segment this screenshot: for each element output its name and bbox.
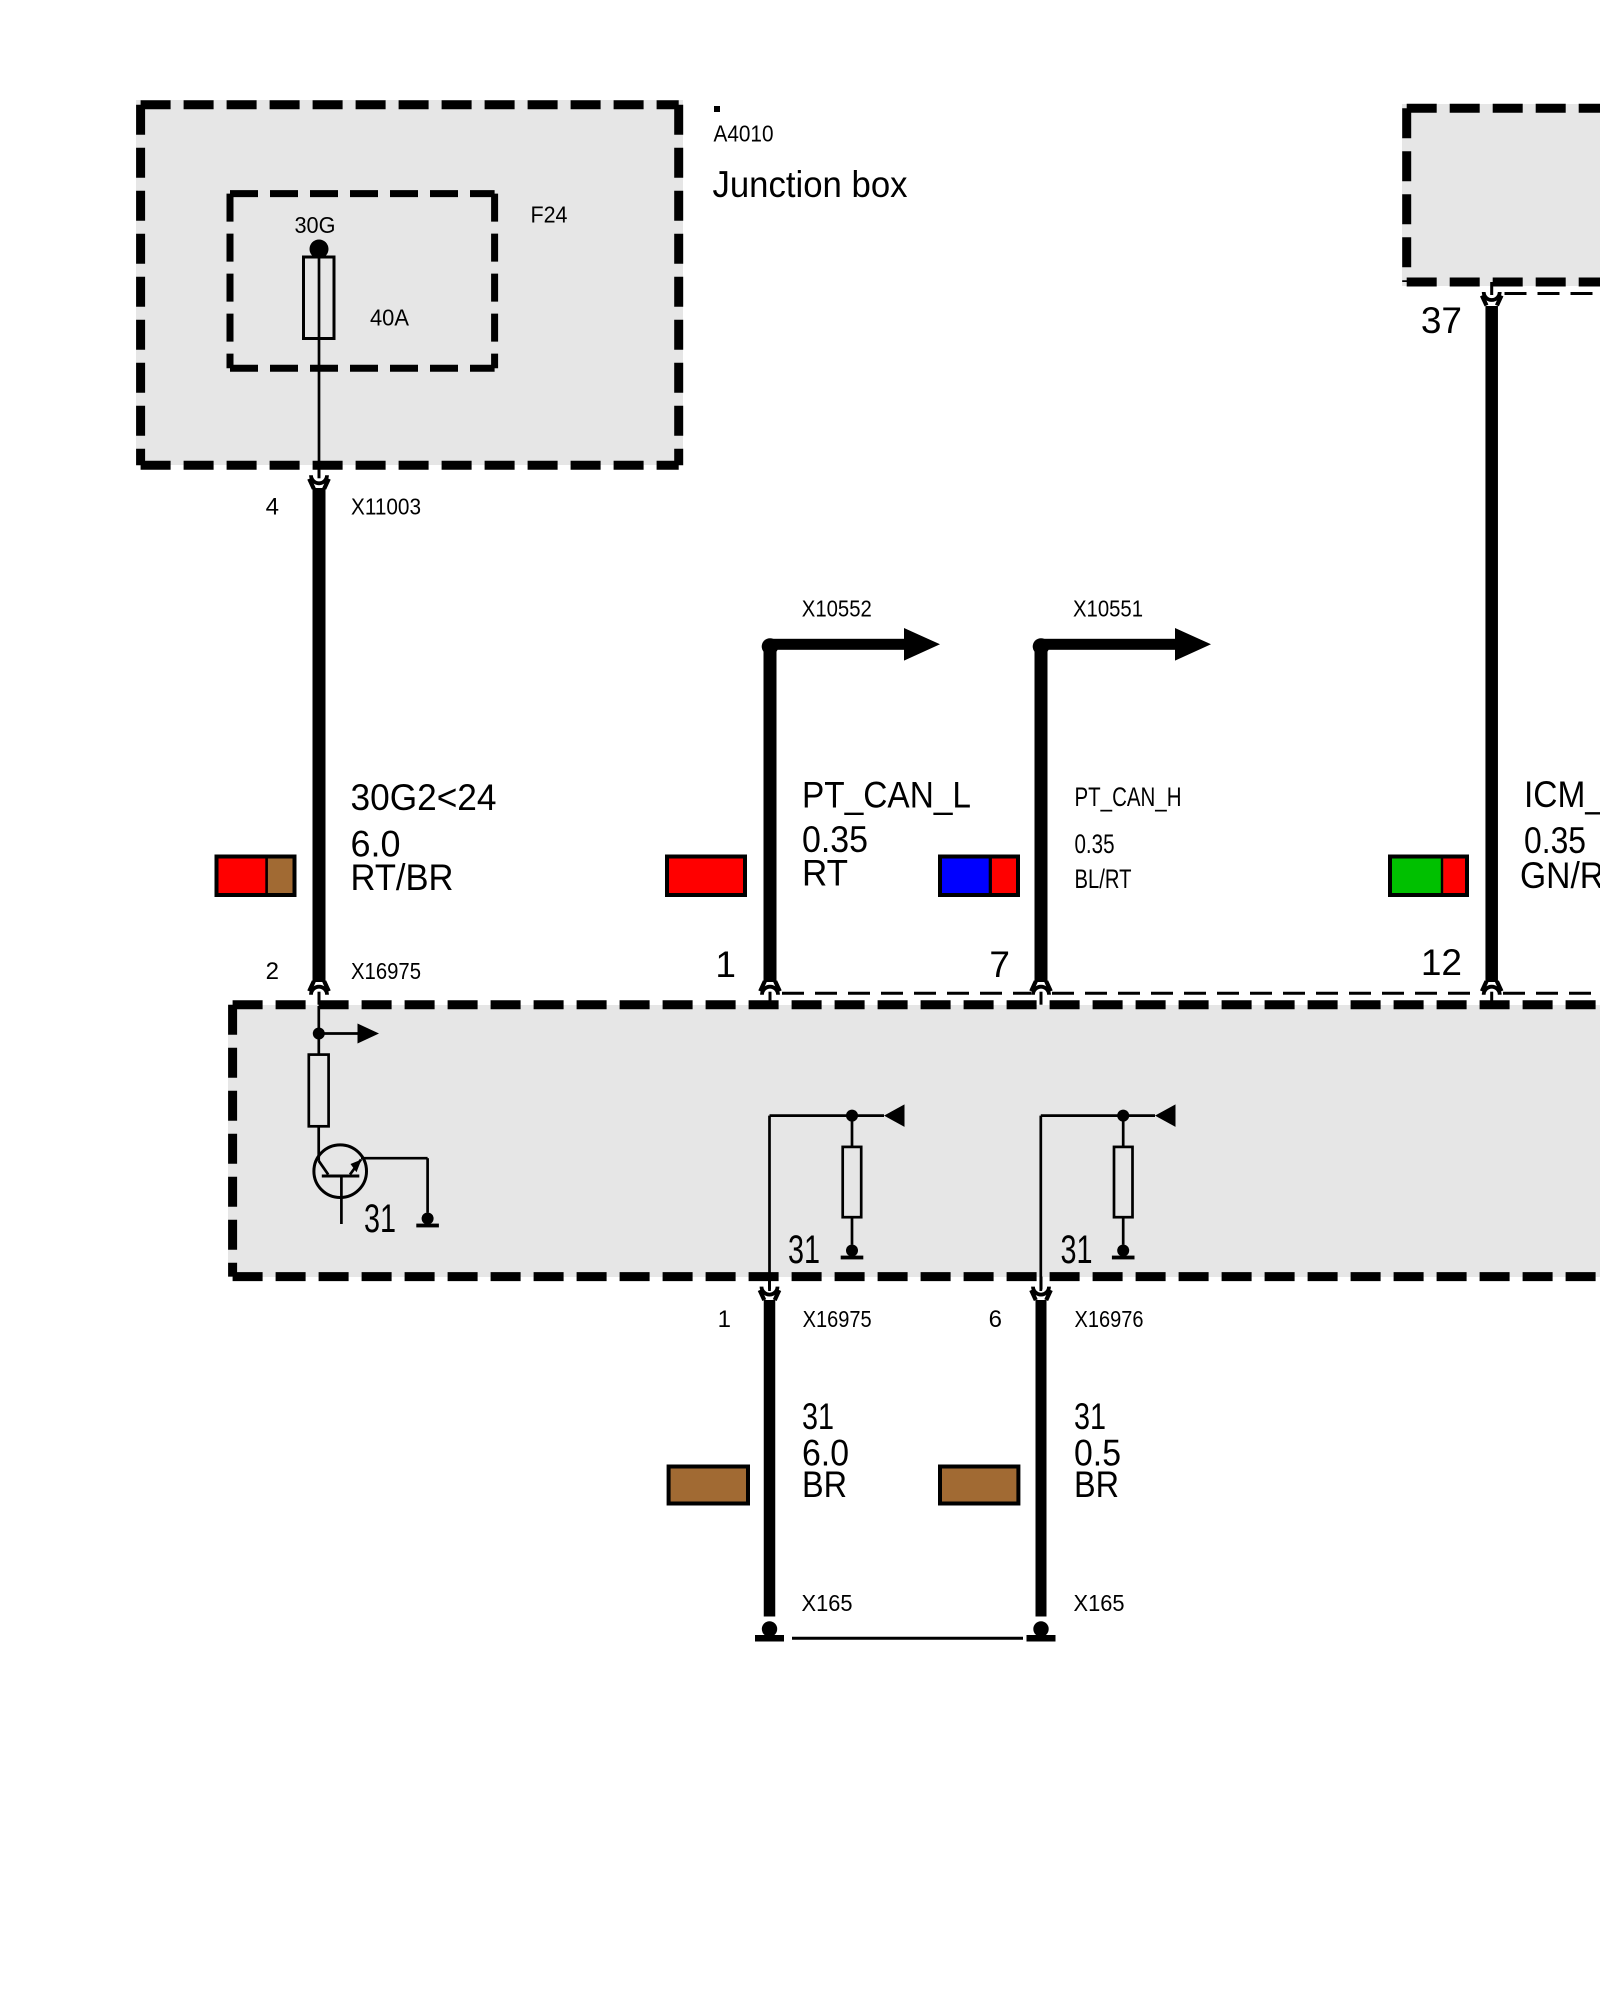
svg-text:BR: BR: [802, 1464, 847, 1505]
svg-text:6: 6: [989, 1306, 1002, 1333]
svg-text:12: 12: [1421, 942, 1462, 983]
svg-text:2: 2: [266, 958, 279, 985]
svg-text:RT/BR: RT/BR: [351, 857, 454, 898]
svg-text:31: 31: [364, 1197, 396, 1241]
svg-text:30G: 30G: [295, 212, 336, 238]
svg-text:X165: X165: [802, 1590, 853, 1616]
svg-text:PT_CAN_L: PT_CAN_L: [802, 775, 971, 816]
svg-text:X11003: X11003: [351, 494, 421, 520]
svg-text:F24: F24: [531, 201, 568, 227]
svg-text:31: 31: [788, 1228, 820, 1272]
svg-text:X16976: X16976: [1075, 1306, 1144, 1332]
svg-text:37: 37: [1421, 300, 1462, 341]
svg-text:X10551: X10551: [1073, 596, 1143, 622]
svg-text:31: 31: [1061, 1228, 1093, 1272]
svg-text:31: 31: [802, 1396, 834, 1437]
svg-text:RT: RT: [802, 853, 848, 894]
svg-text:1: 1: [718, 1306, 731, 1333]
svg-text:30G2<24: 30G2<24: [351, 777, 497, 818]
svg-text:7: 7: [989, 944, 1010, 985]
svg-text:BL/RT: BL/RT: [1075, 864, 1132, 894]
svg-text:BR: BR: [1074, 1464, 1119, 1505]
svg-text:31: 31: [1074, 1396, 1106, 1437]
svg-text:GN/RT: GN/RT: [1520, 855, 1600, 896]
svg-text:X165: X165: [1074, 1590, 1125, 1616]
svg-text:PT_CAN_H: PT_CAN_H: [1075, 782, 1182, 812]
svg-text:X16975: X16975: [803, 1306, 872, 1332]
svg-text:40A: 40A: [370, 305, 410, 331]
svg-text:X16975: X16975: [351, 958, 421, 984]
svg-text:A4010: A4010: [714, 121, 774, 147]
svg-text:0.35: 0.35: [1075, 829, 1115, 859]
svg-text:ICM_: ICM_: [1524, 774, 1600, 815]
svg-text:Junction box: Junction box: [713, 164, 908, 205]
svg-text:4: 4: [266, 494, 279, 521]
svg-text:1: 1: [715, 944, 736, 985]
svg-text:X10552: X10552: [802, 596, 872, 622]
